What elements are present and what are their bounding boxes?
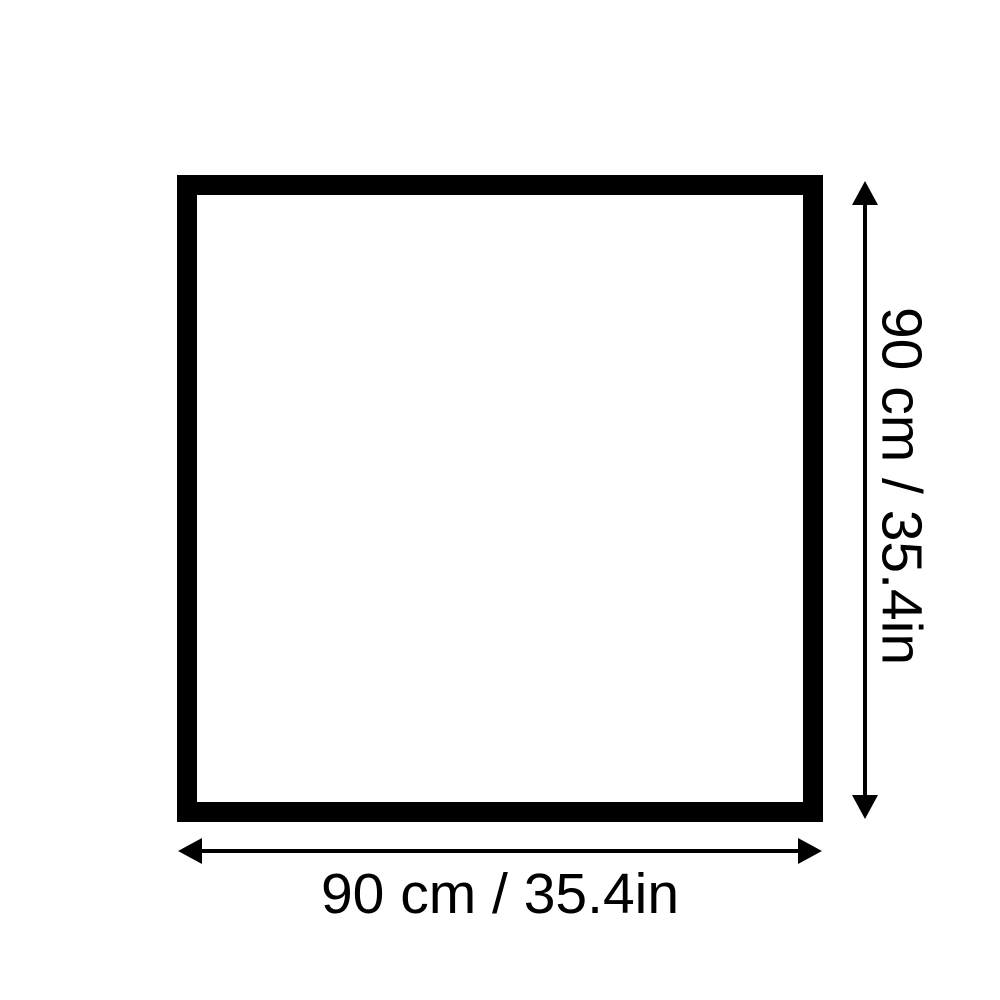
height-dimension-label: 90 cm / 35.4in (873, 307, 930, 665)
product-dimension-diagram: 90 cm / 35.4in 90 cm / 35.4in (0, 0, 1000, 1000)
width-dimension-arrow-icon (178, 837, 822, 865)
square-outline (177, 175, 823, 822)
width-dimension-label: 90 cm / 35.4in (178, 866, 822, 923)
